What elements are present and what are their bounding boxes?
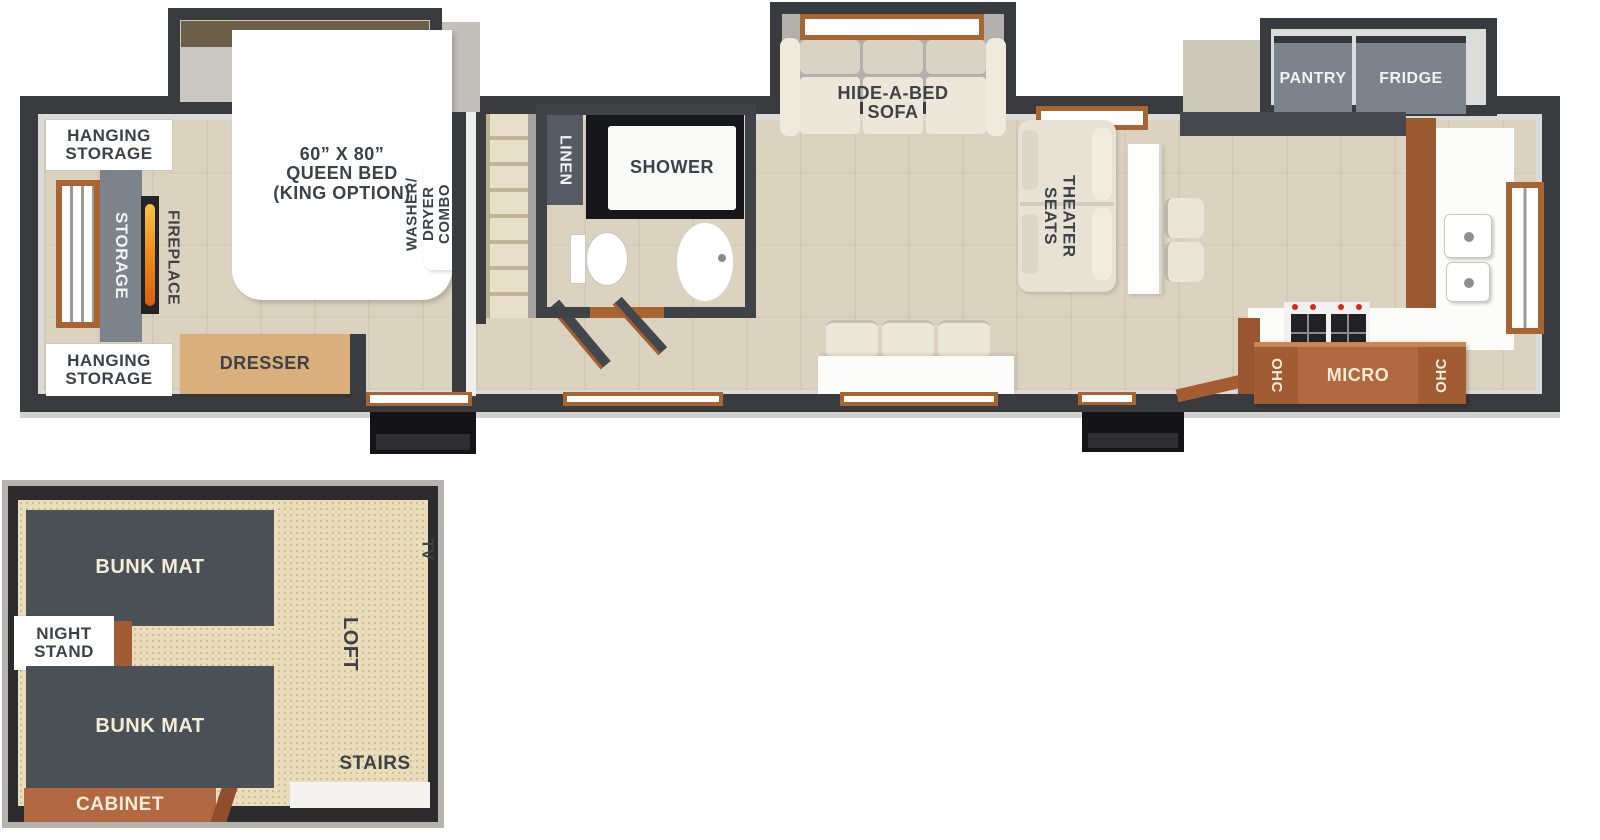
bedroom-wall xyxy=(452,112,466,396)
staircase xyxy=(486,114,540,318)
sink-drain-icon xyxy=(1464,278,1474,288)
kitchen-slide-cap xyxy=(1183,40,1260,114)
entry-step-tread xyxy=(376,434,470,450)
stove-knob-icon xyxy=(1292,304,1298,310)
bar-stool xyxy=(826,320,878,358)
fireplace-label: FIREPLACE xyxy=(159,188,187,328)
bathroom-sink xyxy=(676,222,734,302)
overhead-cabinet: OHC MICRO OHC xyxy=(1254,342,1466,404)
wall-face xyxy=(466,112,476,396)
sink-drain-icon xyxy=(1464,232,1474,242)
linen-closet: LINEN xyxy=(547,115,583,205)
loft-cabinet: CABINET xyxy=(24,788,216,822)
stove-knob-icon xyxy=(1356,304,1362,310)
loft-label: LOFT xyxy=(330,606,368,682)
hanging-storage-bottom-label: HANGING STORAGE xyxy=(46,344,172,396)
entry-step-tread xyxy=(1088,433,1178,448)
loft-stairs-label: STAIRS xyxy=(316,750,434,778)
kitchen-sink-basin xyxy=(1444,214,1492,258)
kitchen-window xyxy=(1506,182,1544,334)
ohc-left: OHC xyxy=(1254,347,1298,404)
sink-faucet-icon xyxy=(718,254,726,262)
entry-door-frame xyxy=(366,392,472,406)
bunk-mat-bottom-label: BUNK MAT xyxy=(95,716,204,738)
linen-label: LINEN xyxy=(556,135,573,186)
entry2-door-frame xyxy=(1078,392,1136,405)
wall-left xyxy=(20,96,38,412)
sofa-back-cushion xyxy=(800,40,860,74)
storage-label: STORAGE xyxy=(112,212,130,299)
ohc-right-label: OHC xyxy=(1434,358,1450,393)
dinette-chair xyxy=(1164,198,1204,238)
dresser-end xyxy=(350,334,366,394)
bar-stool xyxy=(938,320,990,358)
sofa-back-cushion xyxy=(926,40,986,74)
entry-door-sill xyxy=(370,395,468,403)
ohc-left-label: OHC xyxy=(1268,358,1284,393)
theater-seats-label: THEATER SEATS xyxy=(1032,146,1086,286)
dresser: DRESSER xyxy=(180,334,350,394)
ohc-right: OHC xyxy=(1418,347,1466,404)
bedroom-window xyxy=(56,180,100,328)
sofa-armrest xyxy=(986,38,1006,136)
night-stand-label: NIGHT STAND xyxy=(14,616,114,670)
toilet-bowl xyxy=(586,232,628,286)
stair-wall xyxy=(476,112,486,324)
entry2-door-sill xyxy=(1082,395,1132,402)
bunk-mat-bottom: BUNK MAT xyxy=(26,666,274,788)
sofa-armrest xyxy=(780,38,800,136)
fridge-label: FRIDGE xyxy=(1379,70,1442,87)
dinette-chair xyxy=(1164,242,1204,282)
wall-top-a xyxy=(20,96,180,114)
wall-right xyxy=(1542,96,1560,412)
bunk-mat-top: BUNK MAT xyxy=(26,510,274,626)
micro-label: MICRO xyxy=(1327,366,1390,385)
pantry-label: PANTRY xyxy=(1280,70,1347,87)
toilet-tank xyxy=(570,234,586,284)
bar-stool xyxy=(882,320,934,358)
loft-stairs-opening xyxy=(290,782,430,808)
pantry: PANTRY xyxy=(1274,36,1352,114)
theater-seat-back xyxy=(1092,128,1112,200)
entry-step xyxy=(370,412,476,454)
theater-seat-back xyxy=(1092,208,1112,280)
loft-tv-label: TV xyxy=(414,528,440,572)
kitchen-cabinet-panel xyxy=(1406,118,1436,322)
micro: MICRO xyxy=(1298,347,1418,404)
sofa-back-cushion xyxy=(863,40,923,74)
sofa-window xyxy=(800,14,984,40)
bottom-window xyxy=(563,392,723,406)
bar-counter xyxy=(818,356,1014,394)
stove-knob-icon xyxy=(1338,304,1344,310)
loft-cabinet-label: CABINET xyxy=(76,795,164,816)
fridge: FRIDGE xyxy=(1356,36,1466,114)
rv-floorplan: 60” X 80” QUEEN BED (KING OPTION) WASHER… xyxy=(0,0,1600,840)
sofa-label: HIDE-A-BED SOFA xyxy=(806,80,980,126)
shower-pan: SHOWER xyxy=(608,126,736,210)
bottom-window xyxy=(840,392,998,406)
kitchen-sink-basin xyxy=(1446,262,1490,302)
entry-step xyxy=(1082,412,1184,452)
night-stand xyxy=(114,621,132,666)
hanging-storage-top-label: HANGING STORAGE xyxy=(46,120,172,170)
fireplace-flame-icon xyxy=(145,204,155,306)
storage-cabinet: STORAGE xyxy=(100,170,142,342)
rear-counter xyxy=(1180,112,1406,136)
bunk-mat-top-label: BUNK MAT xyxy=(95,557,204,579)
counter-island xyxy=(1128,144,1162,294)
stove-knob-icon xyxy=(1310,304,1316,310)
